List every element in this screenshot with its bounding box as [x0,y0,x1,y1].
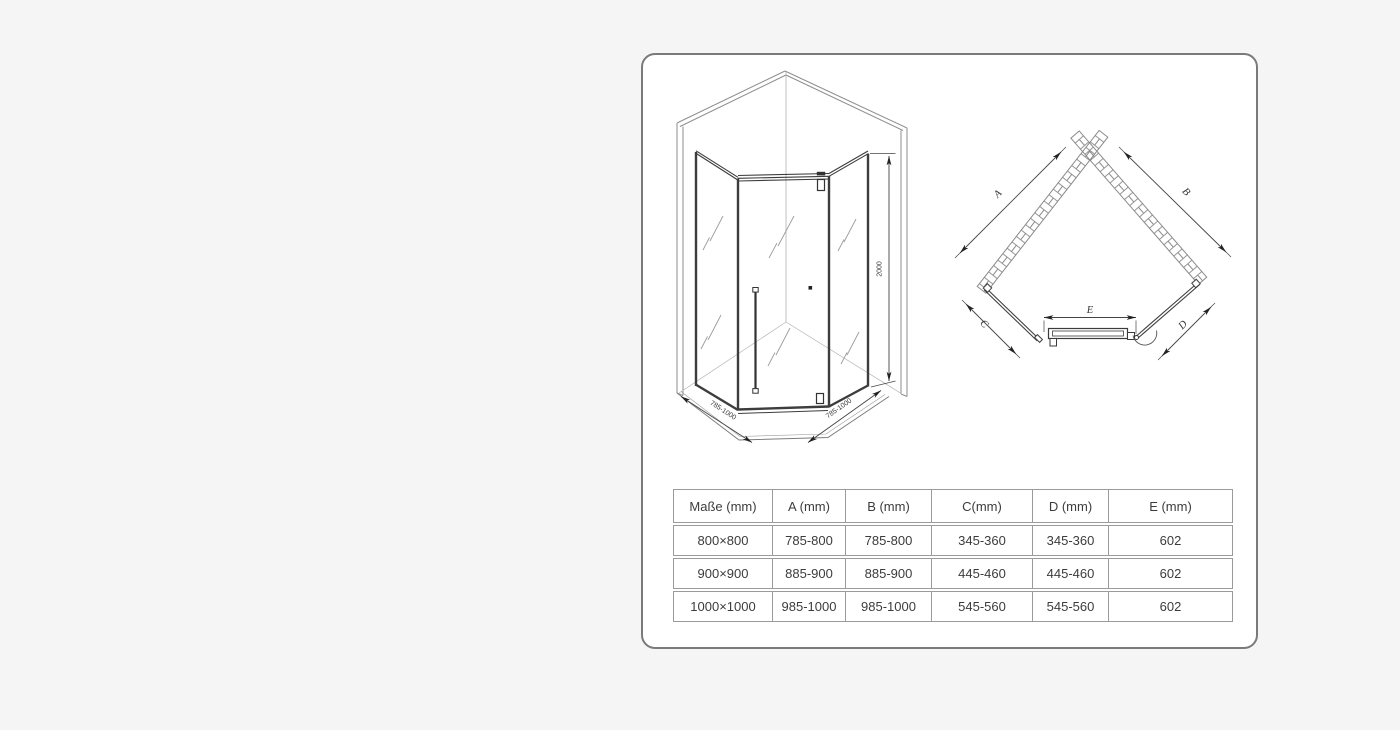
plan-door-handle [1050,339,1057,347]
table-cell: 885-900 [846,558,932,589]
table-cell: 445-460 [1033,558,1109,589]
column-header-d: D (mm) [1033,489,1109,523]
table-cell: 602 [1109,558,1233,589]
column-header-a: A (mm) [773,489,846,523]
plan-drawing: A B C D [940,120,1250,380]
dimensions-table: Maße (mm) A (mm) B (mm) C(mm) D (mm) E (… [673,487,1233,624]
table-cell: 985-1000 [846,591,932,622]
iso-enclosure-frame [696,151,868,414]
table-cell: 545-560 [1033,591,1109,622]
iso-walls [677,71,907,397]
table-cell: 602 [1109,525,1233,556]
table-cell: 545-560 [932,591,1033,622]
table-cell: 900×900 [673,558,773,589]
svg-text:C: C [977,318,990,331]
iso-drawing: 785-1000 785-1000 2000 [650,60,950,460]
column-header-e: E (mm) [1109,489,1233,523]
plan-dim-c: C [962,300,1020,358]
svg-text:E: E [1086,305,1094,316]
table-cell: 885-900 [773,558,846,589]
table-row: 800×800 785-800 785-800 345-360 345-360 … [673,525,1233,556]
table-cell: 785-800 [846,525,932,556]
table-header-row: Maße (mm) A (mm) B (mm) C(mm) D (mm) E (… [673,489,1233,523]
plan-dim-d: D [1158,303,1215,360]
plan-glass-right [1137,279,1200,337]
iso-glass-shine [701,216,859,366]
column-header-c: C(mm) [932,489,1033,523]
svg-text:B: B [1180,186,1193,199]
iso-dim-height: 2000 [870,154,896,388]
table-cell: 445-460 [932,558,1033,589]
table-cell: 1000×1000 [673,591,773,622]
column-header-masse: Maße (mm) [673,489,773,523]
table-cell: 785-800 [773,525,846,556]
column-header-b: B (mm) [846,489,932,523]
svg-text:785-1000: 785-1000 [709,400,738,422]
table-cell: 345-360 [932,525,1033,556]
table-row: 900×900 885-900 885-900 445-460 445-460 … [673,558,1233,589]
table-cell: 345-360 [1033,525,1109,556]
door-hinges [809,172,826,404]
door-handle [753,288,758,394]
svg-text:2000: 2000 [877,261,884,277]
iso-tray [677,392,889,441]
table-cell: 602 [1109,591,1233,622]
table-row: 1000×1000 985-1000 985-1000 545-560 545-… [673,591,1233,622]
svg-text:A: A [991,188,1004,201]
plan-door [1049,329,1139,347]
plan-wall-right [1071,131,1207,284]
door-stopper-dot [809,286,813,290]
iso-dim-width-left: 785-1000 [681,397,752,443]
plan-glass-left [983,284,1042,343]
table-cell: 985-1000 [773,591,846,622]
table-cell: 800×800 [673,525,773,556]
shower-spec-panel: 785-1000 785-1000 2000 [641,53,1258,649]
